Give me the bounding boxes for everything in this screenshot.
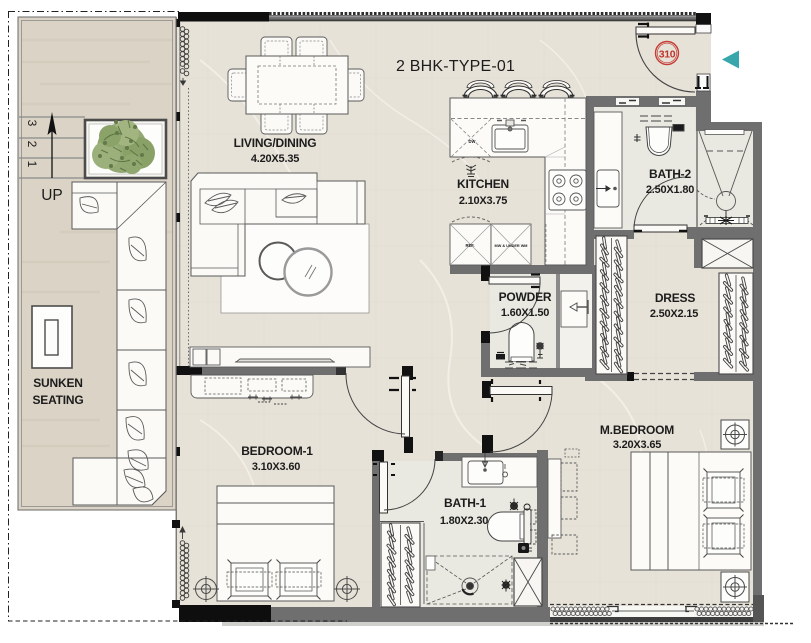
svg-text:3.10X3.60: 3.10X3.60 [252, 461, 300, 473]
svg-text:2 BHK-TYPE-01: 2 BHK-TYPE-01 [396, 58, 515, 75]
svg-text:310: 310 [659, 49, 676, 61]
svg-text:BATH-2: BATH-2 [649, 167, 691, 181]
svg-text:KITCHEN: KITCHEN [457, 177, 509, 191]
svg-text:4.20X5.35: 4.20X5.35 [251, 153, 299, 165]
svg-text:2.50X2.15: 2.50X2.15 [650, 308, 698, 320]
svg-text:1: 1 [25, 161, 39, 168]
svg-text:1.60X1.50: 1.60X1.50 [501, 307, 549, 319]
svg-text:3.20X3.65: 3.20X3.65 [613, 439, 661, 451]
svg-text:BATH-1: BATH-1 [444, 496, 486, 510]
svg-text:2.10X3.75: 2.10X3.75 [459, 195, 507, 207]
svg-text:LIVING/DINING: LIVING/DINING [234, 136, 317, 150]
svg-text:M.BEDROOM: M.BEDROOM [600, 423, 674, 437]
svg-text:SEATING: SEATING [32, 393, 83, 407]
svg-text:2.50X1.80: 2.50X1.80 [646, 184, 694, 196]
svg-text:POWDER: POWDER [499, 290, 552, 304]
svg-text:1.80X2.30: 1.80X2.30 [440, 515, 488, 527]
svg-text:2: 2 [25, 141, 39, 148]
svg-text:DW: DW [469, 139, 476, 144]
svg-text:UP: UP [41, 187, 63, 204]
svg-text:BEDROOM-1: BEDROOM-1 [241, 444, 313, 458]
svg-text:MW & UNDER WM: MW & UNDER WM [495, 244, 528, 248]
svg-text:SUNKEN: SUNKEN [33, 376, 82, 390]
svg-text:DRESS: DRESS [655, 291, 696, 305]
svg-text:3: 3 [25, 120, 39, 127]
svg-text:REF.: REF. [465, 243, 474, 248]
